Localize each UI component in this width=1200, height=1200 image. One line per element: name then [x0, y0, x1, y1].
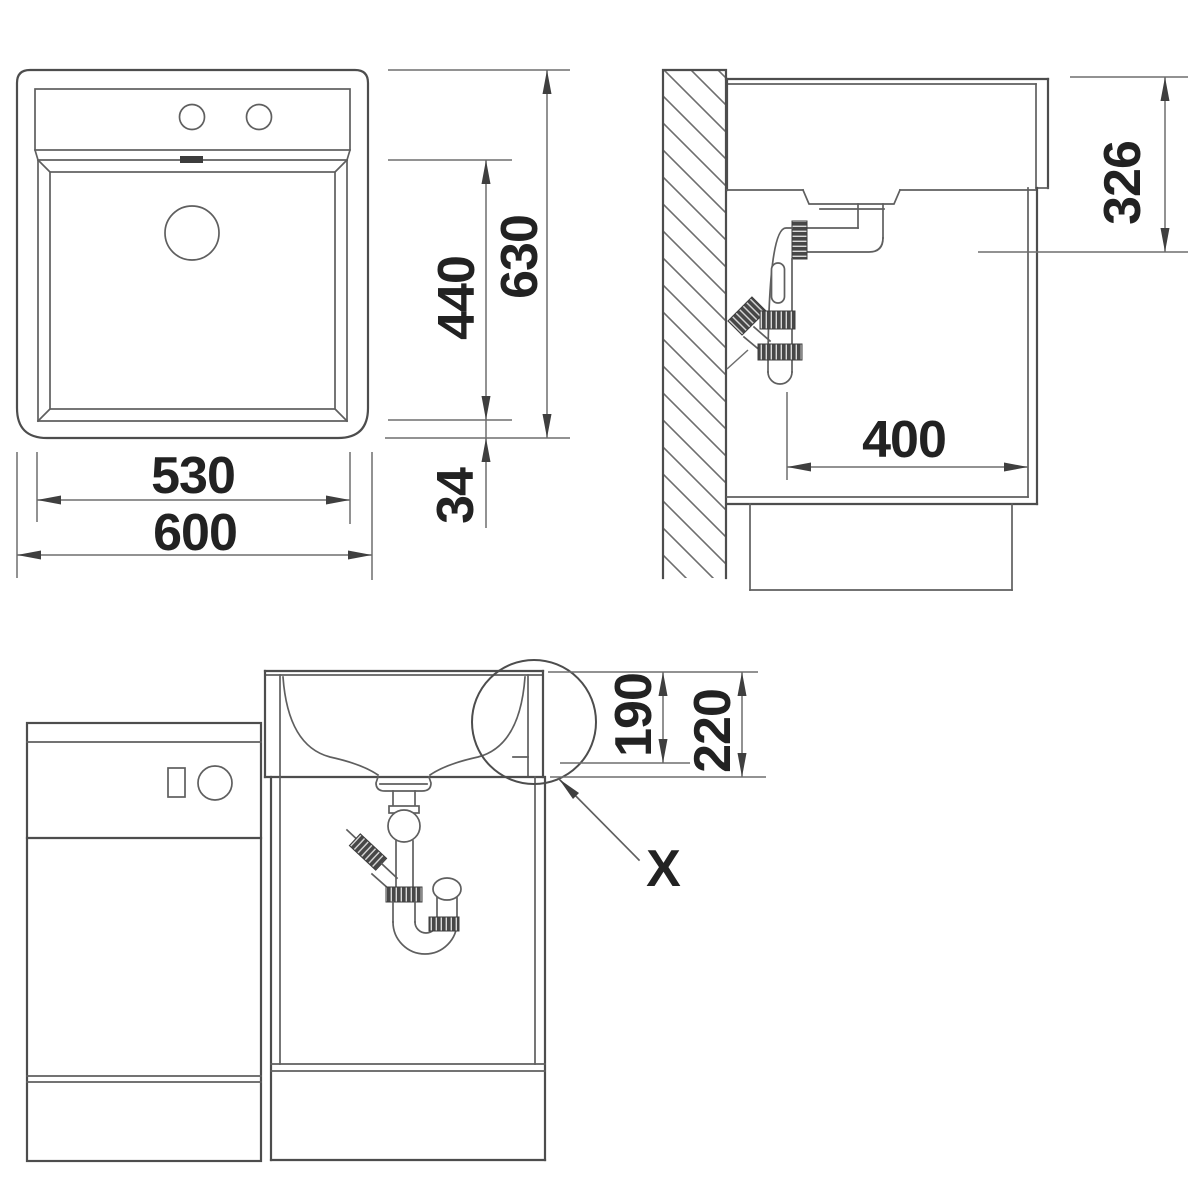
union-nut — [386, 887, 422, 902]
union-nut — [760, 311, 795, 329]
outlet-cap — [433, 878, 461, 900]
cabinet-side — [727, 188, 1037, 590]
technical-drawing-page: 440 630 34 530 600 — [0, 0, 1200, 1200]
dim-label-overall-depth: 630 — [491, 215, 549, 299]
dim-label-bowl-depth: 440 — [428, 256, 486, 340]
dim-label-mounting-height: 326 — [1094, 141, 1152, 225]
swivel-joint — [388, 810, 420, 842]
sink-front-installed — [265, 671, 543, 777]
drain-sump — [803, 190, 900, 204]
tap-hole-left — [180, 105, 205, 130]
union-nut-lower — [758, 344, 802, 360]
installed-view: X — [27, 660, 681, 1161]
pipe-bottom — [768, 372, 792, 384]
sink-outer-shell — [17, 70, 368, 438]
sink-drawing-canvas: 440 630 34 530 600 — [0, 0, 1200, 1200]
dim-label-drain-distance: 400 — [862, 411, 946, 469]
side-view — [663, 70, 1048, 590]
dim-label-bowl-width: 530 — [151, 447, 235, 505]
front-view — [17, 70, 368, 438]
dim-label-bowl-height: 190 — [605, 673, 663, 757]
overflow-slot — [180, 156, 203, 163]
overflow-window — [772, 263, 785, 303]
inlet-fitting — [349, 834, 386, 870]
tap-hole-right — [247, 105, 272, 130]
dim-label-overall-height: 220 — [684, 689, 742, 773]
control-button — [168, 768, 185, 797]
detail-label: X — [646, 840, 681, 898]
wall-hatch — [663, 70, 726, 578]
siphon-trap-side — [727, 204, 883, 384]
pipe-coupling — [792, 221, 807, 259]
union-nut-outlet — [429, 917, 459, 931]
siphon-trap-front — [347, 777, 461, 954]
appliance-cabinet — [27, 723, 261, 1161]
side-view-dimensions: 326 400 — [787, 77, 1188, 480]
tap-deck — [35, 89, 350, 150]
dim-label-rim-offset: 34 — [427, 467, 485, 524]
drain-hole — [165, 206, 219, 260]
detail-circle — [472, 660, 596, 784]
bowl-inner — [50, 172, 335, 409]
dim-label-overall-width: 600 — [153, 504, 237, 562]
control-knob — [198, 766, 232, 800]
front-view-dimensions: 440 630 34 530 600 — [17, 70, 570, 580]
